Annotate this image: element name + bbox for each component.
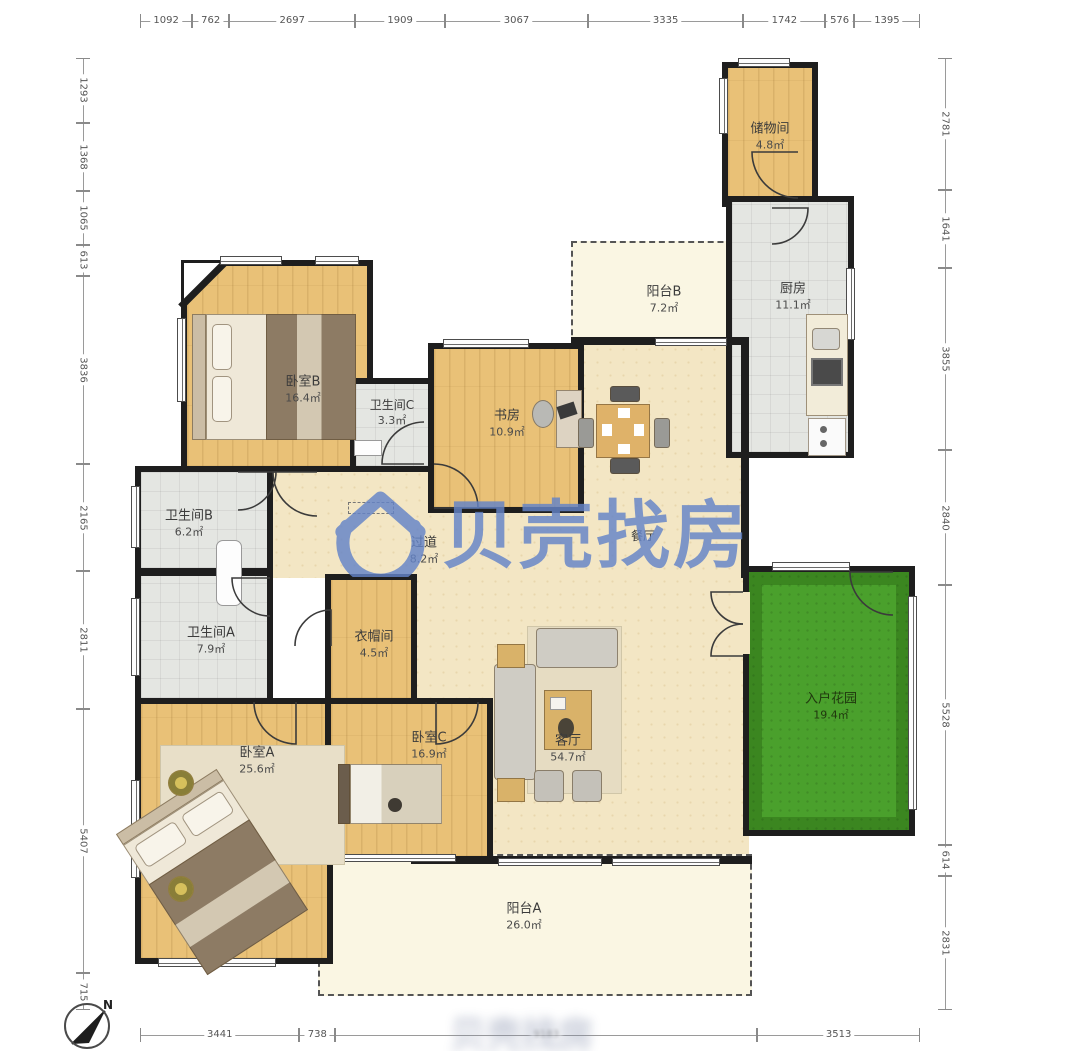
dim-value: 3441: [204, 1029, 235, 1040]
bedside-lamp: [168, 770, 194, 796]
dim-value: 1065: [78, 202, 89, 233]
study-chair: [532, 400, 554, 428]
sofa: [494, 664, 536, 780]
window: [131, 598, 140, 676]
dim-segment: 1065: [76, 191, 90, 245]
dim-value: 3855: [940, 344, 951, 375]
dim-segment: 738: [299, 1028, 335, 1042]
dim-segment: 613: [76, 245, 90, 277]
dim-segment: 3441: [140, 1028, 299, 1042]
dim-value: 1909: [384, 15, 415, 26]
dim-value: 3067: [501, 15, 532, 26]
stool: [534, 770, 564, 802]
dim-value: 2811: [78, 624, 89, 655]
side-table: [497, 644, 525, 668]
dim-segment: 2831: [938, 876, 952, 1010]
room-label-bedroom-b: 卧室B16.4㎡: [285, 374, 321, 405]
window: [719, 78, 728, 134]
stool: [572, 770, 602, 802]
appliance-knob: [820, 426, 827, 433]
bedside-lamp: [168, 876, 194, 902]
dim-segment: 3335: [588, 14, 743, 28]
ruler-top: 1092 762 2697 1909 3067 3335 1742 576 13…: [140, 14, 920, 28]
window: [177, 318, 186, 402]
dim-value: 738: [305, 1029, 330, 1040]
pillow: [212, 324, 232, 370]
pillow: [212, 376, 232, 422]
dim-value: 2697: [276, 15, 307, 26]
ruler-left: 1293 1368 1065 613 3836 2165 2811 5407 7…: [76, 58, 90, 1010]
ruler-bottom: 3441 738 9183 3513: [140, 1028, 920, 1042]
ruler-right: 2781 1641 3855 2840 5528 614 2831: [938, 58, 952, 1010]
dim-value: 2840: [940, 502, 951, 533]
bathroom-basin: [216, 540, 242, 606]
window: [220, 256, 282, 265]
window: [498, 858, 602, 866]
dim-segment: 1909: [355, 14, 445, 28]
dim-segment: 3067: [445, 14, 588, 28]
dim-segment: 5407: [76, 709, 90, 973]
bed-c-object: [388, 798, 402, 812]
compass-north-label: N: [103, 998, 113, 1012]
room-label-kitchen: 厨房11.1㎡: [775, 281, 811, 312]
bathroom-fixture: [354, 440, 382, 456]
corridor-threshold: [348, 502, 394, 514]
dim-value: 9183: [531, 1029, 562, 1040]
bed-c: [350, 764, 442, 824]
dining-right-wall: [741, 337, 749, 578]
window: [772, 562, 850, 571]
window: [443, 339, 529, 348]
dim-value: 576: [827, 15, 852, 26]
plate: [618, 444, 630, 454]
dim-segment: 2811: [76, 571, 90, 709]
sofa: [536, 628, 618, 668]
dim-value: 3513: [823, 1029, 854, 1040]
window: [738, 58, 790, 67]
dim-value: 2831: [940, 927, 951, 958]
room-label-bedroom-c: 卧室C16.9㎡: [411, 730, 447, 761]
dim-value: 2781: [940, 108, 951, 139]
window: [612, 858, 720, 866]
room-label-balcony-a: 阳台A26.0㎡: [506, 901, 542, 932]
dim-segment: 1368: [76, 123, 90, 191]
dim-value: 5407: [78, 826, 89, 857]
room-label-study: 书房10.9㎡: [489, 408, 525, 439]
dim-segment: 2781: [938, 58, 952, 190]
decor: [550, 697, 566, 710]
dim-segment: 1641: [938, 190, 952, 269]
dim-segment: 3836: [76, 276, 90, 464]
appliance-knob: [820, 440, 827, 447]
dim-segment: 3513: [757, 1028, 920, 1042]
room-label-corridor: 过道8.2㎡: [410, 535, 439, 566]
window: [908, 596, 917, 810]
room-label-dining: 餐厅: [631, 529, 655, 545]
dim-segment: 9183: [335, 1028, 757, 1042]
dim-value: 3335: [650, 15, 681, 26]
dim-segment: 614: [938, 845, 952, 876]
kitchen-stove: [811, 358, 843, 386]
room-label-bath-b: 卫生间B6.2㎡: [165, 508, 213, 539]
dim-value: 1092: [150, 15, 181, 26]
dim-value: 762: [198, 15, 223, 26]
window: [131, 486, 140, 548]
dim-segment: 2697: [229, 14, 355, 28]
dim-value: 1368: [78, 141, 89, 172]
plate: [634, 424, 644, 436]
dining-chair: [654, 418, 670, 448]
kitchen-sink: [812, 328, 840, 350]
dim-segment: 5528: [938, 585, 952, 845]
dim-value: 3836: [78, 354, 89, 385]
dim-value: 5528: [940, 699, 951, 730]
dim-segment: 3855: [938, 268, 952, 450]
dim-value: 2165: [78, 502, 89, 533]
room-label-garden: 入户花园19.4㎡: [805, 691, 857, 722]
dim-segment: 1293: [76, 58, 90, 123]
room-label-bedroom-a: 卧室A25.6㎡: [239, 745, 275, 776]
dim-value: 1395: [871, 15, 902, 26]
dim-segment: 576: [825, 14, 853, 28]
room-label-balcony-b: 阳台B7.2㎡: [647, 284, 682, 315]
dim-segment: 1395: [854, 14, 920, 28]
dim-segment: 2840: [938, 450, 952, 585]
dim-value: 1293: [78, 75, 89, 106]
garden-doorway-gap: [736, 592, 750, 654]
dining-chair: [578, 418, 594, 448]
room-label-bath-c: 卫生间C3.3㎡: [370, 398, 414, 428]
dim-value: 715: [78, 979, 89, 1004]
dining-chair: [610, 386, 640, 402]
bed-b-headboard: [192, 314, 206, 440]
window: [338, 854, 456, 862]
room-label-living: 客厅54.7㎡: [550, 733, 586, 764]
room-label-storage: 储物间4.8㎡: [750, 121, 789, 152]
plate: [618, 408, 630, 418]
bed-c-headboard: [338, 764, 350, 824]
dim-segment: 1742: [743, 14, 825, 28]
dim-segment: 1092: [140, 14, 192, 28]
dining-chair: [610, 458, 640, 474]
floor-plan-page: 1092 762 2697 1909 3067 3335 1742 576 13…: [0, 0, 1076, 1051]
side-table: [497, 778, 525, 802]
window: [315, 256, 359, 265]
dim-value: 1742: [769, 15, 800, 26]
dim-value: 614: [940, 848, 951, 873]
window: [655, 338, 727, 346]
dim-value: 613: [78, 248, 89, 273]
dim-value: 1641: [940, 213, 951, 244]
plate: [602, 424, 612, 436]
room-label-wardrobe: 衣帽间4.5㎡: [354, 629, 393, 660]
dim-segment: 762: [192, 14, 229, 28]
kitchen-appliance: [808, 418, 846, 456]
dim-segment: 2165: [76, 464, 90, 571]
room-label-bath-a: 卫生间A7.9㎡: [187, 625, 235, 656]
